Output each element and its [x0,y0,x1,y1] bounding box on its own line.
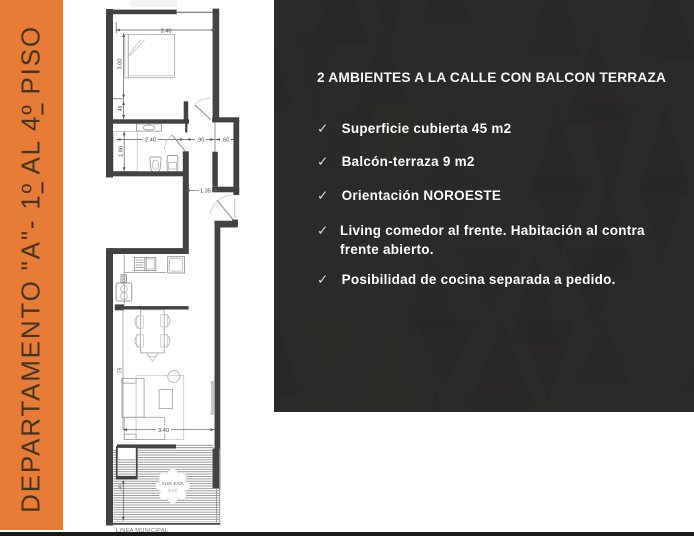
svg-text:.46: .46 [118,105,124,112]
svg-text:3.40: 3.40 [158,428,169,434]
svg-text:.60: .60 [222,137,230,143]
svg-text:1.35: 1.35 [200,188,211,194]
svg-text:2.40: 2.40 [145,137,156,143]
svg-text:3.40: 3.40 [161,28,172,34]
svg-text:9 m²: 9 m² [168,488,178,493]
svg-text:.90: .90 [197,137,205,143]
svg-text:.40: .40 [118,484,123,491]
svg-text:.75: .75 [117,367,123,374]
svg-text:3.00: 3.00 [118,59,124,70]
svg-text:SUP. EXP.: SUP. EXP. [161,481,184,487]
svg-text:1.80: 1.80 [118,146,124,157]
